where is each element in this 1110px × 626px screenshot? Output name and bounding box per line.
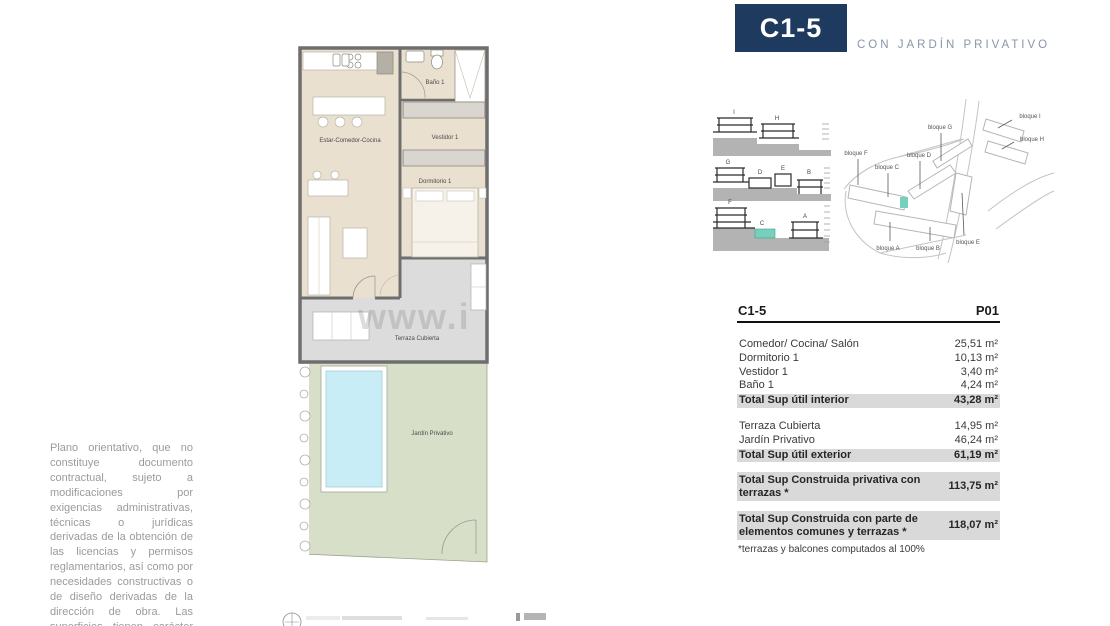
north-arrow-icon: [283, 613, 301, 626]
site-roads: [844, 99, 1054, 263]
table-row: Terraza Cubierta 14,95 m²: [737, 420, 1000, 434]
block-label-c: bloque C: [875, 165, 900, 171]
nightstand: [403, 188, 411, 198]
section-row-1: I H: [713, 110, 831, 156]
block-label-g: bloque G: [928, 125, 953, 131]
island-stools: [318, 117, 362, 127]
kitchen-island: [313, 97, 385, 115]
table-footnote: *terrazas y balcones computados al 100%: [737, 544, 1000, 555]
garden-planting-edge: [299, 364, 310, 556]
block-label-e: bloque E: [956, 240, 980, 246]
table-row: Jardín Privativo 46,24 m²: [737, 434, 1000, 448]
unit-code: C1-5: [760, 13, 823, 44]
shower-icon: [455, 50, 485, 102]
room-label-bath: Baño 1: [425, 80, 445, 86]
highlighted-unit-section: [755, 229, 775, 238]
section-label: I: [733, 110, 735, 116]
table-unit-code: C1-5: [738, 303, 766, 318]
site-buildings: [848, 119, 1028, 238]
block-label-f: bloque F: [844, 151, 868, 157]
legal-disclaimer: Plano orientativo, que no constituye doc…: [50, 441, 193, 626]
block-label-i: bloque I: [1019, 114, 1041, 120]
section-row-3: F C A: [713, 200, 830, 251]
pool: [321, 366, 387, 492]
table-row: Comedor/ Cocina/ Salón 25,51 m²: [737, 338, 1000, 352]
room-label-living: Estar-Comedor-Cocina: [319, 138, 381, 144]
room-label-dressing: Vestidor 1: [432, 135, 459, 141]
block-label-a: bloque A: [876, 246, 899, 252]
table-total-row: Total Sup Construida con parte de elemen…: [737, 511, 1000, 540]
section-label: H: [775, 116, 779, 122]
block-label-b: bloque B: [916, 246, 940, 252]
section-label: B: [807, 170, 811, 176]
unit-subtitle: CON JARDÍN PRIVATIVO: [857, 39, 1050, 51]
surface-area-table: C1-5 P01 Comedor/ Cocina/ Salón 25,51 m²…: [737, 303, 1000, 555]
section-label: C: [760, 221, 765, 227]
block-label-d: bloque D: [907, 153, 932, 159]
section-row-2: G D E B: [713, 160, 831, 201]
scale-bar-segments: [306, 613, 546, 621]
room-label-terrace: Terraza Cubierta: [395, 336, 440, 342]
highlighted-unit-map: [900, 197, 908, 208]
building-sections-diagram: I H G D E B: [703, 98, 838, 253]
toilet-icon: [431, 50, 443, 69]
bedroom-furniture: [403, 188, 486, 257]
unit-code-badge: C1-5: [735, 4, 847, 52]
section-label: F: [728, 200, 732, 206]
scale-bar: [280, 608, 570, 626]
wardrobe: [403, 102, 485, 118]
table-header: C1-5 P01: [737, 303, 1000, 323]
table-row: Dormitorio 1 10,13 m²: [737, 352, 1000, 366]
section-label: D: [758, 170, 763, 176]
table-total-row: Total Sup útil interior 43,28 m²: [737, 394, 1000, 408]
table-total-row: Total Sup Construida privativa con terra…: [737, 472, 1000, 501]
room-label-garden: Jardín Privativo: [411, 431, 453, 437]
sink-icon: [406, 51, 424, 62]
table-row: Vestidor 1 3,40 m²: [737, 366, 1000, 380]
nightstand: [479, 188, 486, 198]
table-row: Baño 1 4,24 m²: [737, 379, 1000, 393]
tv-unit: [343, 228, 367, 258]
block-label-h: bloque H: [1020, 137, 1044, 143]
dining-table: [308, 180, 348, 196]
section-label: A: [803, 214, 807, 220]
section-label: G: [726, 160, 731, 166]
room-label-bedroom: Dormitorio 1: [419, 179, 452, 185]
table-floor-code: P01: [976, 303, 999, 318]
section-label: E: [781, 166, 785, 172]
table-total-row: Total Sup útil exterior 61,19 m²: [737, 449, 1000, 463]
plan-sheet: C1-5 CON JARDÍN PRIVATIVO I H: [0, 0, 1110, 626]
wardrobe: [403, 150, 485, 166]
floor-plan: Estar-Comedor-Cocina Baño 1 Vestidor 1 D…: [295, 42, 491, 568]
site-map: bloque F bloque C bloque D bloque G bloq…: [838, 93, 1055, 265]
kitchen-tall-unit: [377, 52, 393, 74]
